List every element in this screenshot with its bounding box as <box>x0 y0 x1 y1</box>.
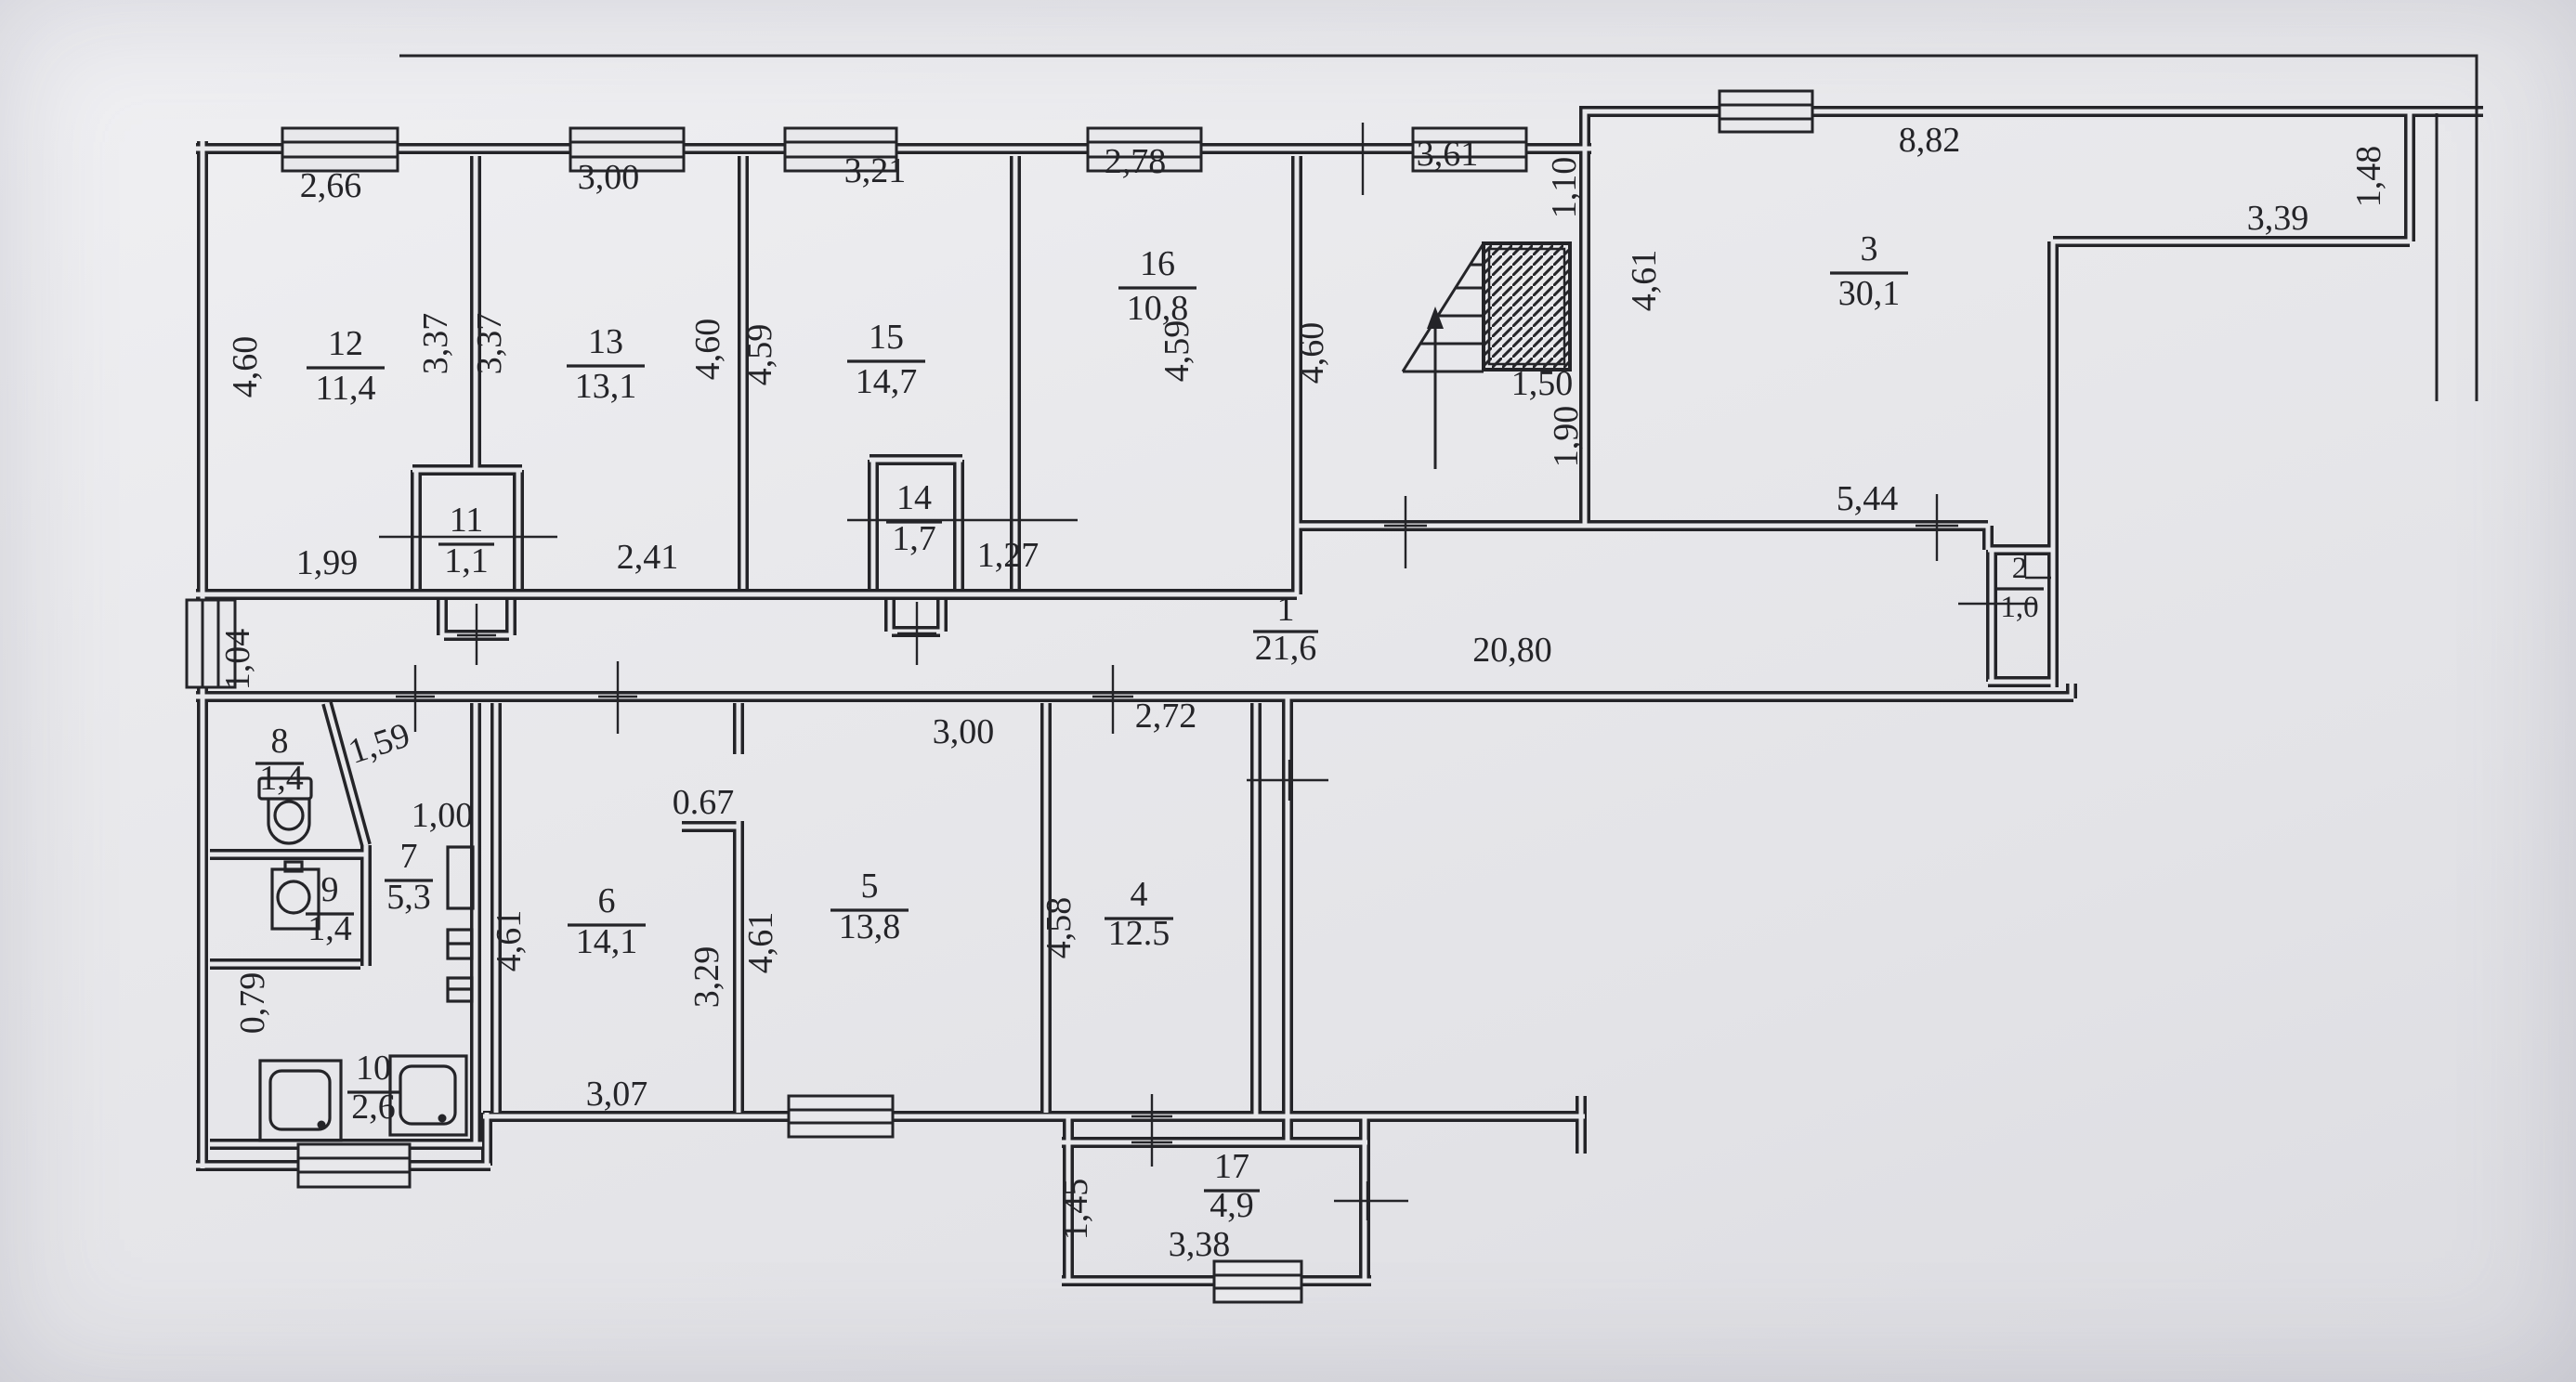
dim-label: 5,44 <box>1837 479 1899 518</box>
dim-label: 1,04 <box>218 629 257 691</box>
room-area: 1,4 <box>307 909 352 948</box>
window-icon <box>789 1096 893 1137</box>
dim-label: 3,00 <box>578 158 640 197</box>
room-number: 6 <box>598 881 616 920</box>
dim-label: 20,80 <box>1472 631 1552 670</box>
walls <box>196 111 2483 1281</box>
room-number: 4 <box>1131 875 1148 914</box>
radiator-icon <box>448 978 472 1001</box>
room-2-label: 2 1,0 <box>1995 552 2044 624</box>
dim-label: 4,59 <box>1157 320 1196 383</box>
dim-label: 1,45 <box>1056 1179 1095 1241</box>
staircase-icon <box>1403 243 1570 469</box>
wall-core <box>196 111 2483 1281</box>
dim-label: 1,99 <box>296 543 359 582</box>
room-14-label: 14 1,7 <box>886 478 942 558</box>
dim-label: 4,60 <box>688 319 727 381</box>
room-number: 10 <box>356 1049 391 1088</box>
room-number: 12 <box>328 324 363 363</box>
dim-label: 2,41 <box>617 538 679 577</box>
room-area: 13,8 <box>839 907 901 946</box>
dim-label: 1,50 <box>1511 364 1574 403</box>
room-number: 14 <box>896 478 932 517</box>
room-number: 11 <box>450 501 484 540</box>
room-number: 9 <box>321 870 339 909</box>
dim-label: 3,00 <box>933 712 995 751</box>
room-3-label: 3 30,1 <box>1830 229 1908 313</box>
room-1-label: 1 21,6 <box>1253 590 1318 668</box>
room-area: 11,4 <box>315 369 375 408</box>
room-area: 13,1 <box>575 367 637 406</box>
room-area: 5,3 <box>386 878 431 917</box>
door-opening-markers <box>379 123 2051 1220</box>
room-number: 8 <box>271 722 289 761</box>
dim-label: 4,61 <box>490 910 529 972</box>
window-icon <box>282 128 398 171</box>
room-area: 1,4 <box>259 759 304 798</box>
window-icon <box>1214 1261 1301 1302</box>
room-area: 12.5 <box>1108 914 1170 953</box>
room-6-label: 6 14,1 <box>568 881 646 961</box>
room-number: 1 <box>1277 590 1295 629</box>
dim-label: 4,60 <box>226 336 265 398</box>
dim-label: 4,59 <box>740 324 779 386</box>
radiator-icon <box>448 930 472 958</box>
dim-label: 4,61 <box>1625 250 1664 312</box>
dim-label: 3,37 <box>416 313 455 375</box>
room-number: 5 <box>861 867 879 906</box>
room-number: 2 <box>2012 552 2028 585</box>
dim-label: 0,79 <box>233 972 272 1035</box>
door-niche <box>448 847 473 908</box>
stair-upper-flight <box>1484 243 1570 370</box>
dim-label: 1,10 <box>1545 157 1584 219</box>
dim-label: 3,21 <box>844 151 907 190</box>
room-number: 16 <box>1140 244 1175 283</box>
room-12-label: 12 11,4 <box>307 324 385 408</box>
room-11-label: 11 1,1 <box>438 501 494 580</box>
shower-tray-icon <box>260 1061 341 1141</box>
dim-label: 8,82 <box>1899 121 1961 160</box>
floor-plan-photo: 2,66 3,00 3,21 2,78 3,61 8,82 3,39 5,44 … <box>0 0 2576 1382</box>
window-icon <box>1720 91 1812 132</box>
room-15-label: 15 14,7 <box>847 318 925 401</box>
window-icon <box>298 1144 410 1187</box>
room-5-label: 5 13,8 <box>830 867 909 946</box>
room-10-label: 10 2,6 <box>347 1049 399 1127</box>
dim-label: 0.67 <box>673 783 735 822</box>
dim-label: 2,66 <box>300 166 362 205</box>
room-16-label: 16 10,8 <box>1118 244 1196 328</box>
room-area: 4,9 <box>1210 1186 1254 1225</box>
room-area: 21,6 <box>1255 629 1317 668</box>
room-4-label: 4 12.5 <box>1105 875 1173 953</box>
room-13-label: 13 13,1 <box>567 322 645 406</box>
room-area: 14,7 <box>856 362 918 401</box>
room-number: 17 <box>1214 1147 1249 1186</box>
room-number: 15 <box>869 318 904 357</box>
dim-label: 1,59 <box>344 715 414 771</box>
floor-plan-drawing: 2,66 3,00 3,21 2,78 3,61 8,82 3,39 5,44 … <box>0 0 2576 1382</box>
dim-label: 3,07 <box>586 1075 648 1114</box>
dim-label: 1,27 <box>977 536 1040 575</box>
shower-tray-icon <box>390 1056 466 1135</box>
room-number: 3 <box>1861 229 1878 268</box>
dim-label: 2,72 <box>1135 697 1197 736</box>
room-area: 2,6 <box>351 1088 396 1127</box>
stair-steps <box>1403 243 1484 372</box>
dim-label: 3,37 <box>470 313 509 375</box>
room-number: 7 <box>400 837 418 876</box>
dim-label: 4,58 <box>1040 897 1079 959</box>
dim-label: 3,61 <box>1417 135 1479 174</box>
dim-label: 3,38 <box>1169 1225 1231 1264</box>
dim-label: 3,39 <box>2247 199 2309 238</box>
dim-label: 1,00 <box>412 796 474 835</box>
tick-cross <box>379 123 2051 1220</box>
room-7-label: 7 5,3 <box>385 837 433 917</box>
room-area: 1,1 <box>444 541 489 580</box>
dim-label: 1,48 <box>2349 146 2388 208</box>
room-8-label: 8 1,4 <box>255 722 304 798</box>
room-area: 1,7 <box>892 519 936 558</box>
dim-label: 3,29 <box>687 946 726 1009</box>
room-number: 13 <box>588 322 623 361</box>
room-area: 30,1 <box>1838 274 1901 313</box>
dim-label: 4,60 <box>1292 322 1331 385</box>
room-9-label: 9 1,4 <box>306 870 354 948</box>
dim-label: 4,61 <box>741 912 780 974</box>
dim-label: 2,78 <box>1105 142 1167 181</box>
room-area: 10,8 <box>1127 289 1189 328</box>
dim-label: 1,90 <box>1547 406 1586 468</box>
room-area: 1,0 <box>2000 591 2038 624</box>
room-17-label: 17 4,9 <box>1204 1147 1260 1225</box>
room-area: 14,1 <box>576 922 638 961</box>
